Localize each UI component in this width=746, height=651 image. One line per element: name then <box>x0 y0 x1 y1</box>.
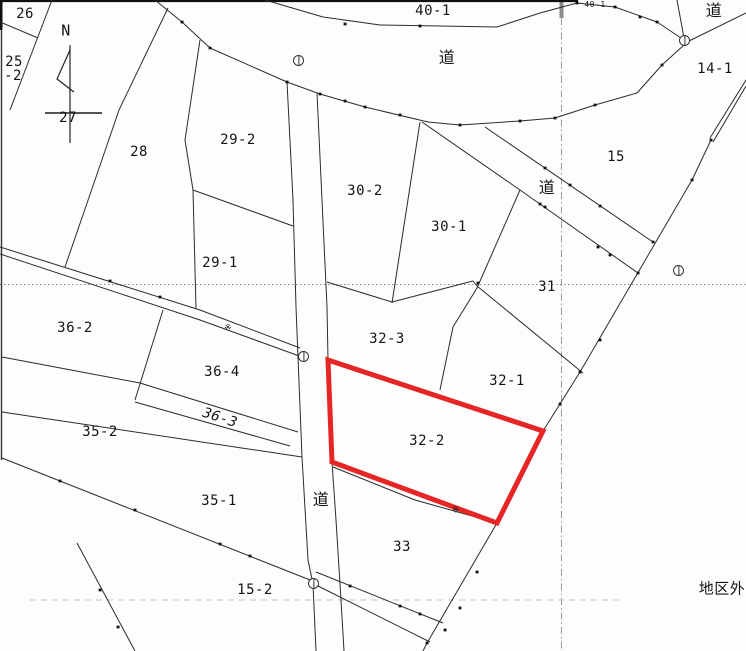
highlighted-parcel-32-2-outline <box>328 360 543 523</box>
map-line-drawing <box>0 0 746 651</box>
grid-lines <box>0 0 746 651</box>
parcel-boundary-lines <box>0 0 746 651</box>
boundary-vertex-dots <box>60 3 711 643</box>
cadastral-map: 2625-2N272829-229-140-140-1道道14-115道30-2… <box>0 0 746 651</box>
north-arrow <box>45 45 102 143</box>
sheet-border-lines <box>0 0 578 460</box>
